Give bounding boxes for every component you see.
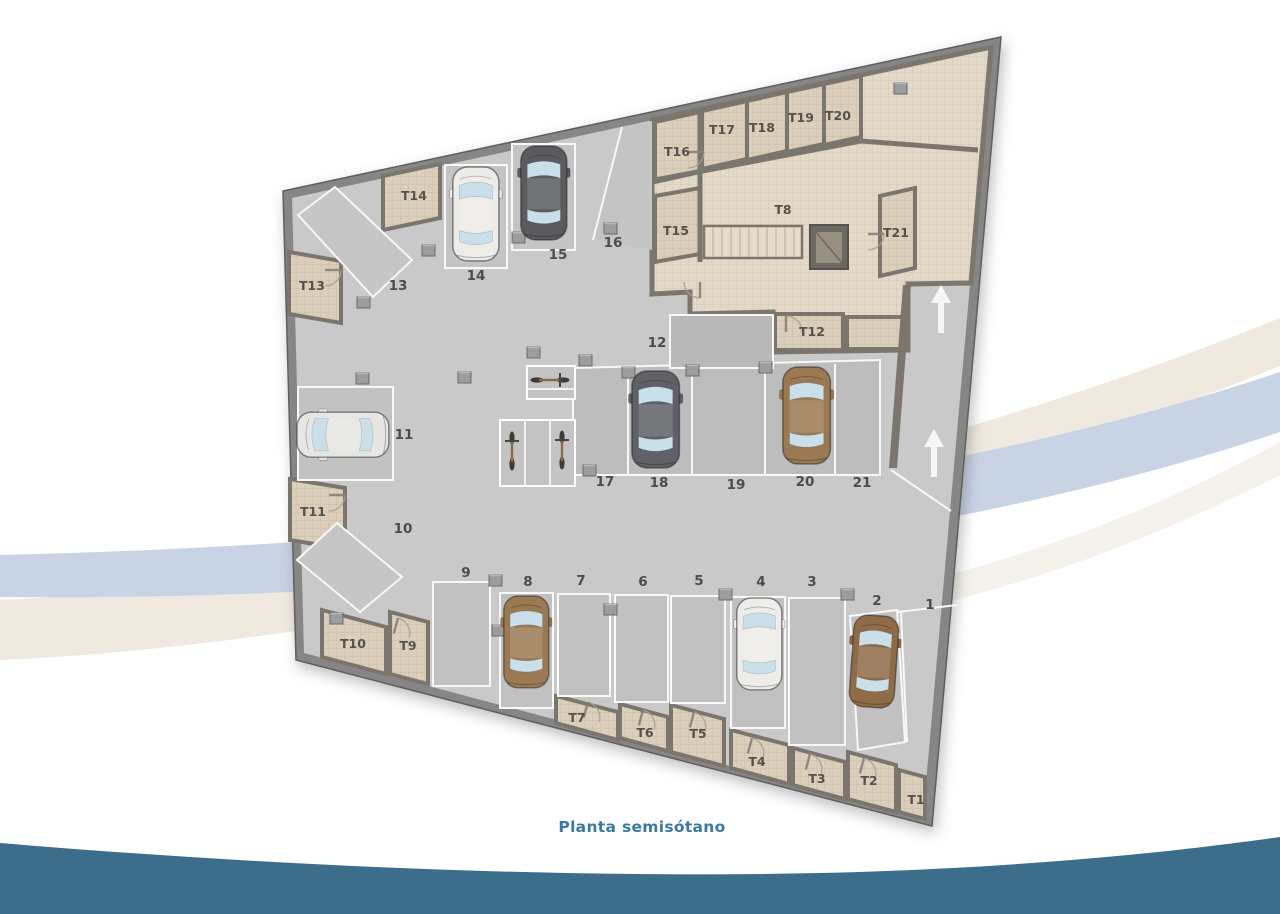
storage-room-label: T10 [340,636,366,651]
parking-space-label: 12 [648,335,667,351]
parking-space-label: 1 [925,597,934,613]
stall-7 [558,594,610,696]
staircase [704,226,802,258]
storage-room-label: T20 [825,108,851,123]
parking-space-label: 4 [756,574,765,590]
storage-room-label: T11 [300,504,326,519]
elevator [810,225,848,269]
parking-space-label: 9 [461,565,470,581]
stall-12 [670,315,773,368]
storage-room-label: T12 [799,324,825,339]
storage-room-label: T16 [664,144,690,159]
storage-room-label: T3 [808,771,825,786]
stall-5 [671,596,725,703]
parking-space-label: 13 [389,278,408,294]
storage-room-label: T4 [748,754,766,769]
stall-6 [615,595,668,702]
floor-plan-svg: 1 2 3 4 5 6 7 8 9 10 11 12 13 14 15 16 1… [0,0,1280,914]
storage-room-label: T17 [709,122,735,137]
page: 1 2 3 4 5 6 7 8 9 10 11 12 13 14 15 16 1… [0,0,1280,914]
room-aux [847,317,903,349]
parking-space-label: 2 [872,593,881,609]
storage-room-label: T2 [860,773,877,788]
car-space-20 [780,367,834,464]
car-space-11 [297,409,389,460]
parking-space-label: 8 [523,574,532,590]
storage-room-label: T1 [907,792,924,807]
storage-room-label: T7 [568,710,585,725]
parking-space-label: 15 [549,247,568,263]
storage-room-label: T6 [636,725,654,740]
plan-caption: Planta semisótano [558,818,725,836]
parking-space-label: 10 [394,521,413,537]
stall-3 [789,598,845,745]
parking-space-label: 20 [796,474,815,490]
storage-room-label: T14 [401,188,427,203]
parking-space-label: 11 [395,427,414,443]
parking-space-label: 3 [807,574,816,590]
parking-space-label: 7 [576,573,585,589]
storage-room-label: T9 [399,638,416,653]
storage-room-label: T5 [689,726,706,741]
parking-space-label: 21 [853,475,872,491]
parking-space-label: 18 [650,475,669,491]
parking-space-label: 14 [467,268,486,284]
storage-room-label: T19 [788,110,814,125]
parking-space-label: 16 [604,235,623,251]
car-space-18 [629,371,683,468]
storage-room-label: T18 [749,120,775,135]
stall-9 [433,582,490,686]
car-space-4 [734,598,785,690]
parking-space-label: 5 [694,573,703,589]
car-space-15 [518,146,570,240]
car-space-8 [501,596,552,688]
storage-room-label: T15 [663,223,689,238]
storage-room-label: T13 [299,278,325,293]
storage-room-label: T21 [883,225,909,240]
parking-space-label: 19 [727,477,746,493]
storage-room-label: T8 [774,202,791,217]
parking-space-label: 17 [596,474,615,490]
parking-space-label: 6 [638,574,647,590]
car-space-14 [450,167,502,261]
car-space-2 [845,614,903,709]
